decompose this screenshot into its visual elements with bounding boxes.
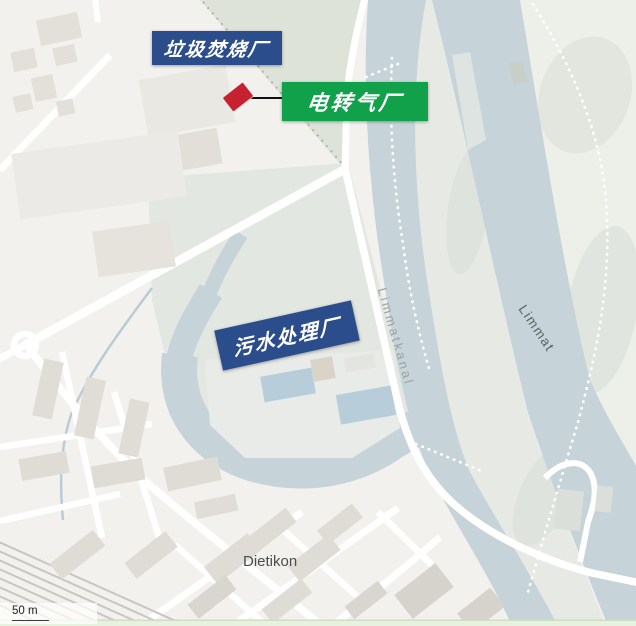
scale-bar-label: 50 m (12, 605, 38, 617)
label-power-to-gas-plant-text: 电转气厂 (305, 87, 405, 117)
map[interactable]: 垃圾焚烧厂 电转气厂 污水处理厂 Limmatkanal Limmat Diet… (0, 0, 636, 626)
label-incineration-plant-text: 垃圾焚烧厂 (163, 35, 272, 62)
scale-bar-line (12, 620, 49, 621)
scale-bar: 50 m (0, 603, 97, 624)
label-dietikon: Dietikon (243, 553, 297, 570)
label-power-to-gas-plant: 电转气厂 (282, 82, 428, 121)
label-incineration-plant: 垃圾焚烧厂 (152, 31, 282, 65)
